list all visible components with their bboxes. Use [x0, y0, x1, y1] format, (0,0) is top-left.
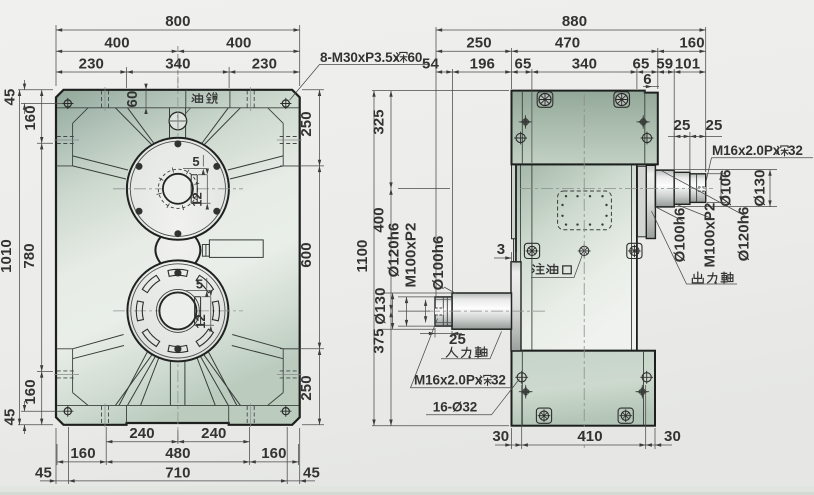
svg-text:240: 240 — [201, 425, 226, 442]
svg-text:16-Ø32: 16-Ø32 — [433, 400, 477, 415]
svg-text:880: 880 — [562, 13, 587, 30]
svg-text:800: 800 — [165, 13, 190, 30]
svg-text:25: 25 — [706, 117, 723, 134]
svg-text:M100xP2: M100xP2 — [702, 203, 719, 268]
svg-text:780: 780 — [21, 243, 38, 268]
svg-text:160: 160 — [22, 105, 39, 130]
svg-text:5: 5 — [196, 277, 203, 292]
svg-text:60: 60 — [124, 91, 141, 108]
svg-text:230: 230 — [79, 55, 104, 72]
svg-text:160: 160 — [22, 379, 39, 404]
svg-text:Ø100h6: Ø100h6 — [430, 236, 447, 291]
svg-text:160: 160 — [70, 445, 95, 462]
svg-text:6: 6 — [643, 71, 651, 88]
svg-text:375: 375 — [371, 328, 388, 353]
svg-text:5: 5 — [192, 154, 199, 169]
svg-text:3: 3 — [497, 241, 505, 258]
svg-text:600: 600 — [298, 242, 315, 267]
svg-text:230: 230 — [252, 55, 277, 72]
svg-text:325: 325 — [371, 109, 388, 134]
svg-text:45: 45 — [35, 464, 52, 481]
svg-text:25: 25 — [449, 331, 466, 348]
svg-text:Ø120h6: Ø120h6 — [736, 207, 753, 262]
svg-text:250: 250 — [466, 35, 491, 52]
svg-text:8-M30xP3.5x: 8-M30xP3.5x — [320, 50, 401, 65]
svg-text:400: 400 — [226, 35, 251, 52]
svg-text:Ø106: Ø106 — [718, 169, 735, 206]
svg-text:12: 12 — [190, 192, 205, 206]
svg-text:45: 45 — [303, 464, 320, 481]
svg-text:710: 710 — [165, 464, 190, 481]
svg-text:M16x2.0Px: M16x2.0Px — [414, 373, 483, 388]
svg-text:45: 45 — [2, 409, 19, 426]
svg-text:Ø120h6: Ø120h6 — [386, 223, 403, 278]
svg-text:1010: 1010 — [0, 239, 15, 273]
svg-text:32: 32 — [491, 373, 506, 388]
svg-text:25: 25 — [674, 117, 691, 134]
svg-text:Ø100h6: Ø100h6 — [672, 208, 689, 263]
svg-text:240: 240 — [129, 425, 154, 442]
svg-text:59: 59 — [656, 55, 673, 72]
svg-text:470: 470 — [555, 35, 580, 52]
svg-text:32: 32 — [788, 143, 803, 158]
svg-text:160: 160 — [679, 35, 704, 52]
svg-text:410: 410 — [577, 428, 602, 445]
svg-text:65: 65 — [515, 55, 532, 72]
svg-text:45: 45 — [2, 89, 19, 106]
svg-text:Ø130: Ø130 — [752, 169, 769, 206]
svg-text:12: 12 — [193, 314, 208, 328]
svg-text:30: 30 — [492, 428, 509, 445]
svg-text:65: 65 — [633, 55, 650, 72]
svg-text:480: 480 — [165, 445, 190, 462]
svg-text:30: 30 — [664, 428, 681, 445]
svg-text:250: 250 — [298, 111, 315, 136]
svg-text:340: 340 — [165, 55, 190, 72]
svg-text:250: 250 — [298, 375, 315, 400]
svg-text:340: 340 — [572, 55, 597, 72]
svg-text:101: 101 — [675, 55, 700, 72]
svg-text:400: 400 — [104, 35, 129, 52]
svg-text:196: 196 — [470, 55, 495, 72]
svg-text:54: 54 — [422, 55, 439, 72]
svg-text:M16x2.0Px: M16x2.0Px — [712, 143, 781, 158]
svg-text:Ø130: Ø130 — [372, 287, 389, 324]
svg-text:160: 160 — [261, 445, 286, 462]
svg-text:M100xP2: M100xP2 — [403, 223, 420, 288]
svg-text:60: 60 — [408, 50, 423, 65]
svg-text:1100: 1100 — [354, 240, 371, 273]
